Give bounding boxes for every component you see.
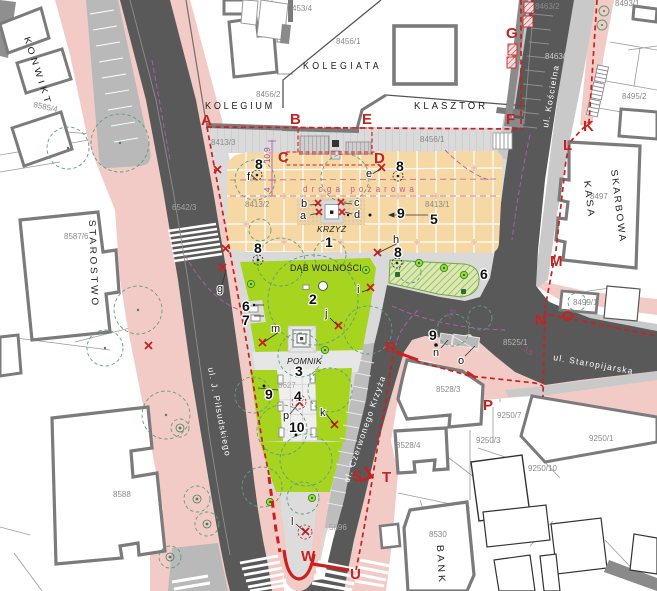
svg-text:b: b (301, 198, 307, 210)
svg-text:9: 9 (265, 386, 273, 402)
svg-text:p: p (283, 410, 289, 422)
svg-text:2: 2 (309, 291, 317, 307)
svg-text:4: 4 (263, 187, 272, 192)
svg-text:9: 9 (429, 327, 437, 343)
svg-text:8588: 8588 (113, 490, 131, 499)
svg-text:i: i (357, 284, 359, 296)
svg-text:453/4: 453/4 (292, 4, 313, 13)
svg-text:C: C (278, 149, 289, 166)
svg-text:10,9: 10,9 (263, 147, 272, 163)
svg-text:m: m (271, 323, 280, 335)
svg-text:8456/2: 8456/2 (256, 90, 281, 99)
svg-text:P: P (483, 397, 493, 414)
svg-text:9: 9 (397, 205, 405, 221)
svg-text:8627: 8627 (278, 381, 296, 390)
svg-text:a: a (300, 210, 307, 222)
svg-text:c: c (354, 197, 360, 209)
svg-text:DĄB WOLNOŚCI: DĄB WOLNOŚCI (290, 262, 362, 273)
svg-text:G: G (506, 25, 518, 42)
svg-text:9250/7: 9250/7 (497, 411, 522, 420)
svg-text:6542/3: 6542/3 (172, 203, 197, 212)
svg-text:d: d (354, 209, 360, 221)
svg-text:8528/4: 8528/4 (396, 441, 421, 450)
svg-text:BANK: BANK (434, 545, 447, 586)
svg-text:K: K (583, 118, 594, 135)
svg-text:8499/1: 8499/1 (573, 298, 598, 307)
svg-text:M: M (550, 253, 563, 270)
svg-text:O: O (562, 308, 574, 325)
svg-text:5: 5 (430, 211, 438, 227)
svg-text:E: E (362, 111, 372, 128)
svg-text:8525/1: 8525/1 (503, 338, 528, 347)
svg-text:9250/3: 9250/3 (476, 436, 501, 445)
svg-text:l: l (291, 516, 293, 528)
svg-text:1: 1 (325, 234, 333, 250)
svg-text:8413/2: 8413/2 (245, 200, 270, 209)
svg-text:8463/2: 8463/2 (535, 2, 560, 11)
svg-text:8413/1: 8413/1 (425, 200, 450, 209)
svg-text:L: L (563, 137, 572, 154)
svg-text:4: 4 (294, 388, 302, 404)
svg-text:8: 8 (394, 244, 402, 260)
svg-text:KRZYŻ: KRZYŻ (317, 224, 347, 234)
svg-text:D: D (374, 150, 385, 167)
svg-text:droga pożarowa: droga pożarowa (303, 184, 418, 194)
svg-text:KLASZTOR: KLASZTOR (414, 101, 488, 112)
svg-text:9250/10: 9250/10 (528, 464, 557, 473)
svg-text:8587/6: 8587/6 (64, 232, 89, 241)
svg-text:8463/1: 8463/1 (545, 52, 570, 61)
svg-text:POMNIK: POMNIK (287, 356, 322, 366)
svg-text:8495/2: 8495/2 (622, 92, 647, 101)
svg-text:R: R (385, 339, 396, 356)
svg-text:KOLEGIUM: KOLEGIUM (205, 101, 275, 112)
svg-text:e: e (366, 168, 372, 180)
svg-text:8: 8 (255, 156, 263, 172)
svg-text:N: N (535, 312, 546, 329)
svg-text:g: g (217, 283, 223, 295)
svg-text:W: W (301, 548, 316, 565)
svg-text:B: B (290, 111, 301, 128)
svg-text:h: h (393, 234, 399, 246)
svg-text:F: F (506, 111, 515, 128)
svg-text:8528/3: 8528/3 (436, 385, 461, 394)
svg-text:n: n (433, 347, 439, 359)
svg-text:8530: 8530 (429, 530, 447, 539)
svg-text:9250/1: 9250/1 (589, 434, 614, 443)
svg-text:8413/3: 8413/3 (211, 138, 236, 147)
svg-text:7: 7 (242, 312, 250, 328)
svg-text:8456/1: 8456/1 (336, 37, 361, 46)
svg-text:10: 10 (289, 419, 305, 435)
svg-text:o: o (458, 355, 464, 367)
svg-text:8: 8 (254, 240, 262, 256)
svg-text:U: U (350, 566, 361, 583)
svg-text:T: T (382, 469, 391, 486)
svg-text:5696: 5696 (329, 523, 347, 532)
svg-text:A: A (201, 112, 212, 129)
svg-text:k: k (320, 407, 326, 419)
svg-text:j: j (324, 308, 327, 320)
svg-text:KOLEGIATA: KOLEGIATA (303, 60, 382, 72)
svg-text:8493/1: 8493/1 (615, 0, 640, 8)
svg-text:6: 6 (480, 266, 488, 282)
svg-text:8: 8 (396, 158, 404, 174)
svg-text:8456/1: 8456/1 (420, 135, 445, 144)
